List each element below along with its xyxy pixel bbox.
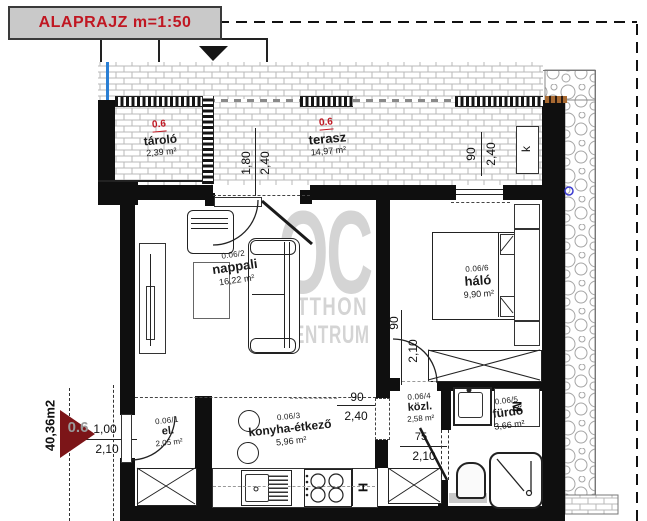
room-label-tarolo: 0.6 tároló 2,39 m² [125, 111, 195, 160]
halo-window [456, 185, 503, 200]
title-box: ALAPRAJZ m=1:50 [8, 6, 222, 40]
wall-tarolo-bottom [98, 180, 204, 182]
plan-title: ALAPRAJZ m=1:50 [39, 14, 192, 32]
dimline-terrace-door [255, 128, 256, 196]
wall-right [542, 100, 565, 521]
halo-window-line1 [456, 189, 503, 190]
dim-dash-left-1 [69, 388, 70, 521]
gravel-border-right [595, 70, 596, 495]
dim-terasz-door-h: 2,40 [258, 129, 272, 197]
el-wardrobe [137, 468, 197, 506]
wall-tarolo-left [98, 100, 115, 182]
pocket-door-panel [375, 438, 388, 468]
kozl-cabinet [388, 468, 442, 504]
armchair-line2 [191, 223, 228, 224]
wall-top-mid [310, 185, 456, 200]
shower [489, 452, 543, 509]
room-label-el: 0.06/1 el. 2,05 m² [138, 413, 197, 451]
entry-arrow-icon [199, 46, 228, 61]
dimline-furdo-door [400, 446, 447, 447]
gravel-strip-right [565, 100, 595, 495]
wall-halo-bottom-stub [390, 378, 400, 391]
terasz-code: 0.6 [319, 117, 334, 130]
kitchen-sink-basin [245, 474, 269, 502]
corner-line-v [100, 40, 102, 62]
tarolo-code: 0.6 [152, 119, 167, 132]
konyha-dim-dash [290, 398, 337, 399]
dim-furdo-door-w: 75 [406, 431, 436, 443]
kitchen-counter [212, 468, 378, 508]
room-label-halo: 0.06/6 háló 9,90 m² [447, 262, 509, 301]
dim-halo-door-w: 90 [387, 303, 401, 343]
armchair-line3 [191, 228, 228, 229]
wall-nappali-halo [376, 200, 390, 398]
chimney-label: k [519, 139, 533, 159]
sofa-back-line2 [289, 242, 290, 348]
armchair-line1 [191, 218, 228, 219]
dim-halo-window-w: 90 [464, 134, 478, 174]
headboard [514, 229, 540, 321]
toilet [456, 462, 486, 499]
tv-line [150, 254, 151, 346]
room-label-kozl: 0.06/4 közl. 2,58 m² [393, 390, 447, 425]
kitchen-drainboard [269, 473, 288, 501]
wall-left-lower [120, 458, 135, 506]
railing-dash-2 [353, 99, 455, 102]
gravel-border-top [543, 70, 595, 71]
dimline-k-window [481, 132, 482, 176]
unit-number-label: 0.6 [60, 419, 96, 436]
door-jamb-terrace-right [300, 190, 312, 204]
halo-wardrobe [428, 350, 542, 382]
room-label-furdo: 0.06/5 fürdő 3,66 m² [476, 392, 540, 433]
blue-pipe [106, 62, 109, 100]
floor-plan-page: { "title": "ALAPRAJZ m=1:50", "unit": { … [0, 0, 647, 521]
armchair [187, 210, 234, 254]
dimline-konyha-opening [337, 405, 377, 406]
halo-door-dash [402, 381, 436, 382]
dim-terasz-door-w: 1,80 [239, 129, 253, 197]
wall-left-upper [120, 200, 135, 415]
sofa-back-line1 [284, 242, 285, 348]
dimline-halo-door [401, 310, 402, 385]
railing-dash-1 [208, 99, 300, 102]
terrace-door-leaf [214, 197, 262, 207]
dim-konyha-opening-h: 2,40 [334, 409, 378, 423]
wall-el-konyha [195, 396, 212, 506]
drain-point-blue [565, 187, 573, 195]
railing-hatch-2 [300, 96, 353, 107]
halo-window-dash [451, 202, 510, 203]
fridge-label: H [356, 478, 371, 498]
dim-halo-door-h: 2,10 [406, 327, 420, 375]
counter-divider [352, 468, 353, 506]
dim-entry-door-h: 2,10 [84, 442, 130, 456]
room-label-terasz: 0.6 terasz 14,97 m² [290, 109, 364, 160]
property-boundary-top [218, 21, 637, 23]
washing-machine-label: M [510, 397, 525, 417]
brick-strip-bottom-right [565, 495, 618, 514]
halo-window-line2 [456, 194, 503, 195]
counter-centerline [213, 486, 375, 487]
nightstand-bottom [514, 321, 540, 346]
nightstand-top [514, 204, 540, 229]
dim-furdo-door-h: 2,10 [402, 449, 446, 463]
railing-hatch-1 [115, 96, 208, 107]
railing-hatch-3 [455, 96, 543, 107]
furdo-door-pocket-r [448, 430, 449, 480]
dim-konyha-opening-w: 90 [336, 390, 378, 404]
railing-hatch-orange [545, 96, 567, 103]
stove [304, 469, 352, 507]
total-area-label: 40,36m2 [43, 388, 58, 464]
sofa-seat-divider [252, 294, 284, 295]
property-boundary-right [636, 21, 638, 521]
entry-line-v1 [158, 38, 160, 62]
tarolo-hatch-wall [202, 96, 214, 184]
entry-line-v2 [266, 38, 268, 62]
dim-halo-window-h: 2,40 [484, 130, 498, 178]
